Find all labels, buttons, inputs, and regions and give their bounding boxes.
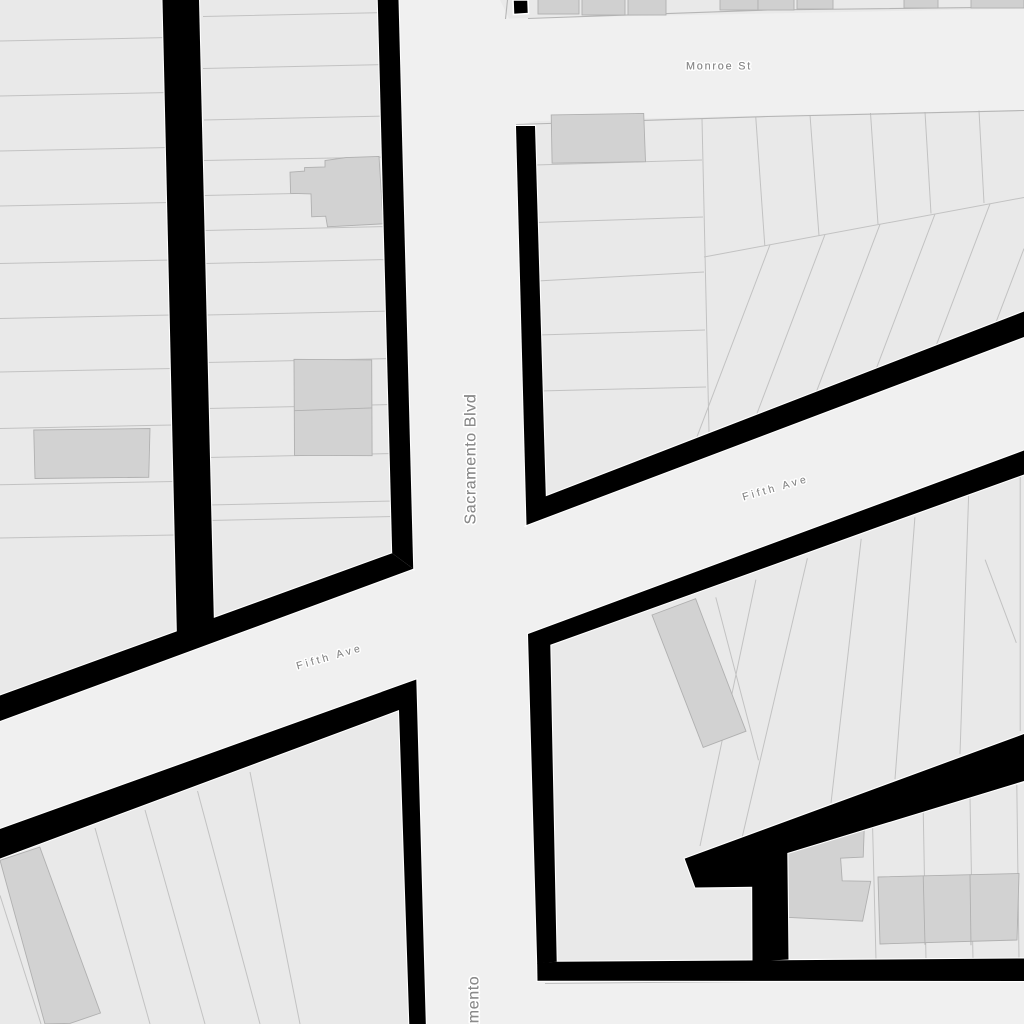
svg-text:Monroe St: Monroe St [686, 61, 752, 73]
svg-text:Sacramento: Sacramento [466, 976, 483, 1024]
svg-text:Sacramento Blvd: Sacramento Blvd [462, 394, 479, 525]
